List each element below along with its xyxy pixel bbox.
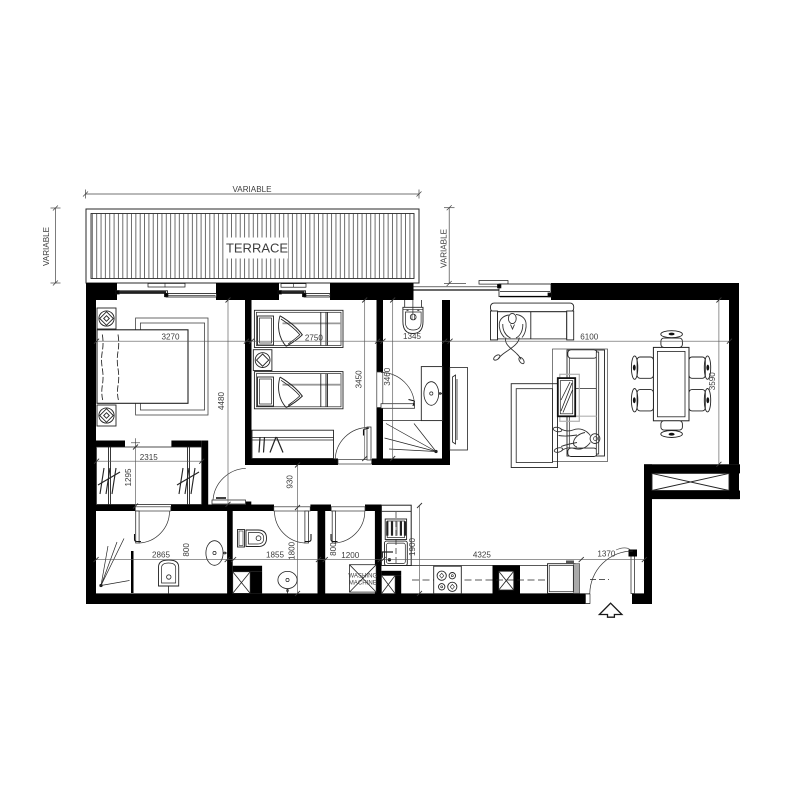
svg-text:1900: 1900 (408, 538, 417, 557)
svg-text:VARIABLE: VARIABLE (439, 228, 448, 268)
svg-text:2865: 2865 (152, 551, 171, 560)
svg-text:4325: 4325 (473, 551, 492, 560)
svg-text:3270: 3270 (161, 333, 180, 342)
svg-text:WASHING: WASHING (348, 573, 377, 580)
svg-text:1200: 1200 (341, 551, 360, 560)
svg-text:VARIABLE: VARIABLE (233, 185, 273, 194)
svg-text:6100: 6100 (580, 333, 599, 342)
svg-text:930: 930 (286, 475, 295, 489)
svg-text:3590: 3590 (708, 372, 717, 391)
svg-text:800: 800 (329, 542, 338, 556)
svg-text:1345: 1345 (403, 332, 422, 341)
svg-text:4480: 4480 (217, 392, 226, 411)
svg-text:1370: 1370 (597, 550, 616, 559)
svg-text:1800: 1800 (288, 541, 297, 560)
svg-text:800: 800 (182, 543, 191, 557)
svg-text:1855: 1855 (266, 551, 285, 560)
svg-text:1295: 1295 (124, 468, 133, 487)
svg-text:VARIABLE: VARIABLE (42, 226, 51, 266)
svg-text:2750: 2750 (305, 333, 324, 342)
svg-text:2315: 2315 (140, 453, 159, 462)
svg-text:3450: 3450 (355, 370, 364, 389)
svg-text:3460: 3460 (383, 367, 392, 386)
svg-text:MACHINE: MACHINE (349, 580, 377, 587)
svg-text:TERRACE: TERRACE (226, 241, 288, 256)
